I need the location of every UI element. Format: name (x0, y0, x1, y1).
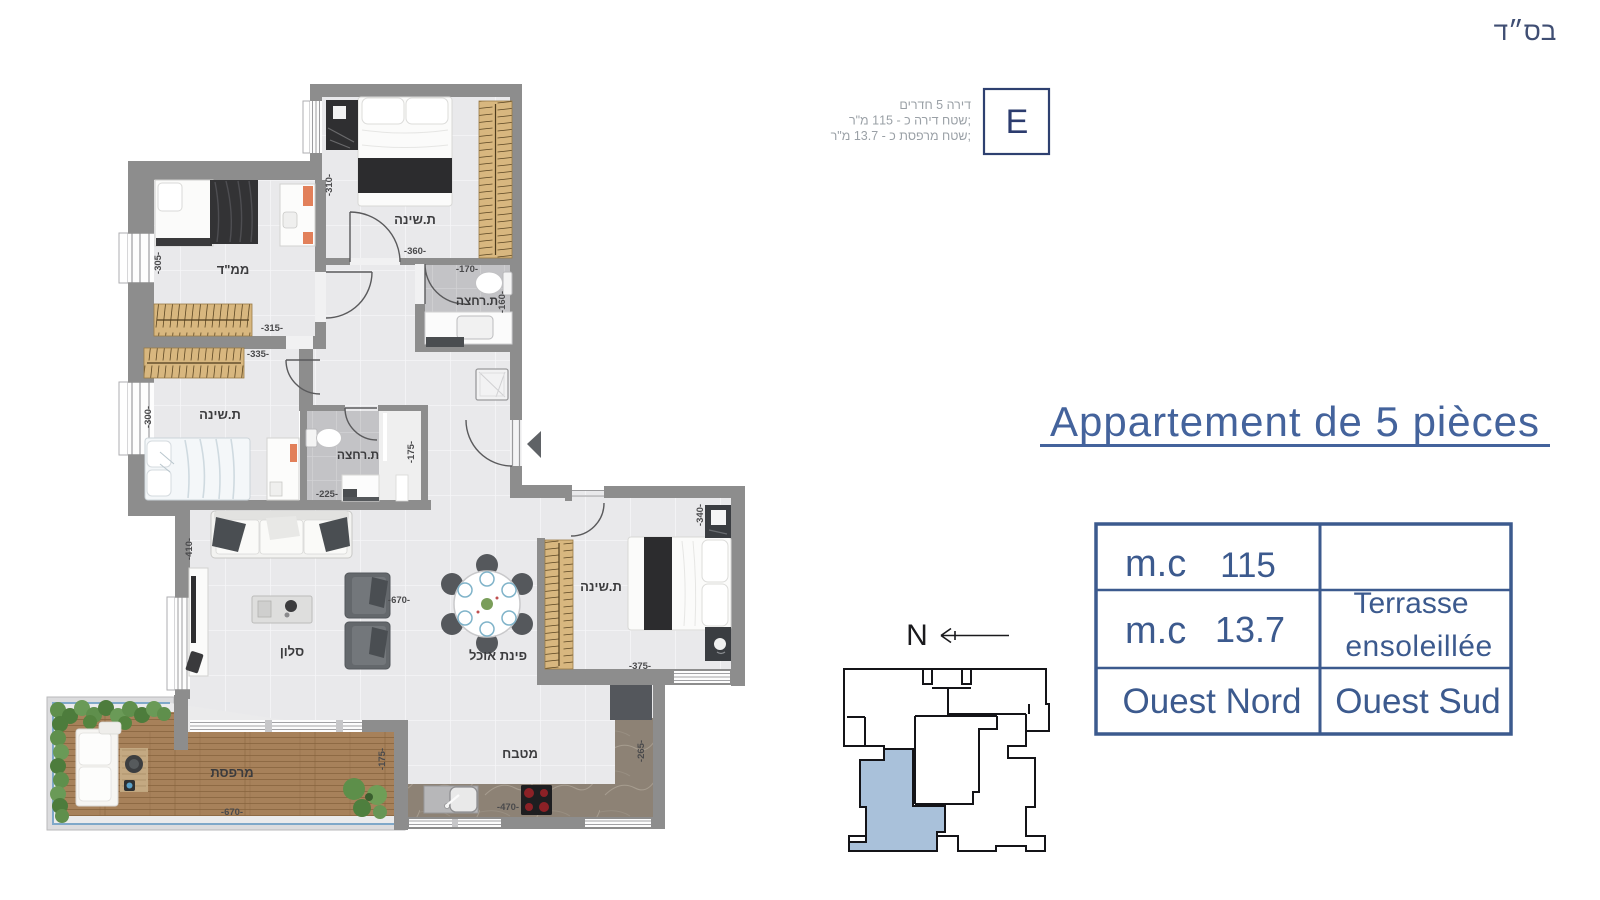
svg-text:-315-: -315- (261, 323, 283, 334)
svg-text:-470-: -470- (497, 802, 519, 813)
svg-text:-360-: -360- (404, 246, 426, 257)
svg-text:-410-: -410- (184, 538, 195, 560)
svg-text:ת.שינה: ת.שינה (199, 407, 241, 422)
svg-text:סלון: סלון (280, 644, 304, 659)
svg-text:דירה 5 חדרים: דירה 5 חדרים (899, 98, 971, 112)
svg-text:בס״ד: בס״ד (1494, 16, 1557, 46)
svg-text:ת.רחצה: ת.רחצה (337, 448, 379, 462)
svg-text:ת.רחצה: ת.רחצה (456, 294, 498, 308)
svg-text:-310-: -310- (324, 174, 335, 196)
svg-text:-670-: -670- (388, 595, 410, 606)
svg-text:-175-: -175- (377, 748, 388, 770)
svg-text:13.7: 13.7 (1215, 609, 1285, 650)
svg-text:ת.שינה: ת.שינה (580, 579, 622, 594)
svg-text:שטח מרפסת כ - 13.7 מ"ר;: שטח מרפסת כ - 13.7 מ"ר; (831, 129, 971, 143)
svg-text:-265-: -265- (636, 740, 647, 762)
svg-text:N: N (906, 619, 928, 652)
svg-text:-670-: -670- (221, 807, 243, 818)
svg-text:m.c: m.c (1125, 543, 1186, 585)
svg-text:-225-: -225- (316, 489, 338, 500)
svg-text:m.c: m.c (1125, 610, 1186, 652)
svg-text:Appartement de 5 pièces: Appartement de 5 pièces (1050, 398, 1540, 445)
svg-text:-300-: -300- (143, 406, 154, 428)
svg-text:Ouest Sud: Ouest Sud (1335, 682, 1500, 721)
svg-text:-340-: -340- (695, 504, 706, 526)
svg-text:שטח דירה כ - 115 מ"ר;: שטח דירה כ - 115 מ"ר; (849, 114, 971, 128)
svg-text:ensoleillée: ensoleillée (1345, 630, 1492, 663)
svg-text:-305-: -305- (153, 252, 164, 274)
svg-text:פינת אוכל: פינת אוכל (469, 648, 527, 663)
svg-text:-170-: -170- (456, 264, 478, 275)
svg-text:Ouest Nord: Ouest Nord (1123, 682, 1302, 721)
svg-text:-160-: -160- (497, 291, 508, 313)
svg-text:-175-: -175- (406, 441, 417, 463)
svg-text:מטבח: מטבח (502, 746, 538, 761)
svg-text:-375-: -375- (629, 661, 651, 672)
svg-text:115: 115 (1220, 546, 1276, 585)
svg-text:ת.שינה: ת.שינה (394, 212, 436, 227)
svg-text:E: E (1006, 103, 1029, 141)
svg-text:Terrasse: Terrasse (1353, 587, 1468, 620)
svg-text:ממ"ד: ממ"ד (217, 262, 250, 277)
svg-text:-335-: -335- (247, 349, 269, 360)
svg-text:מרפסת: מרפסת (210, 765, 253, 780)
